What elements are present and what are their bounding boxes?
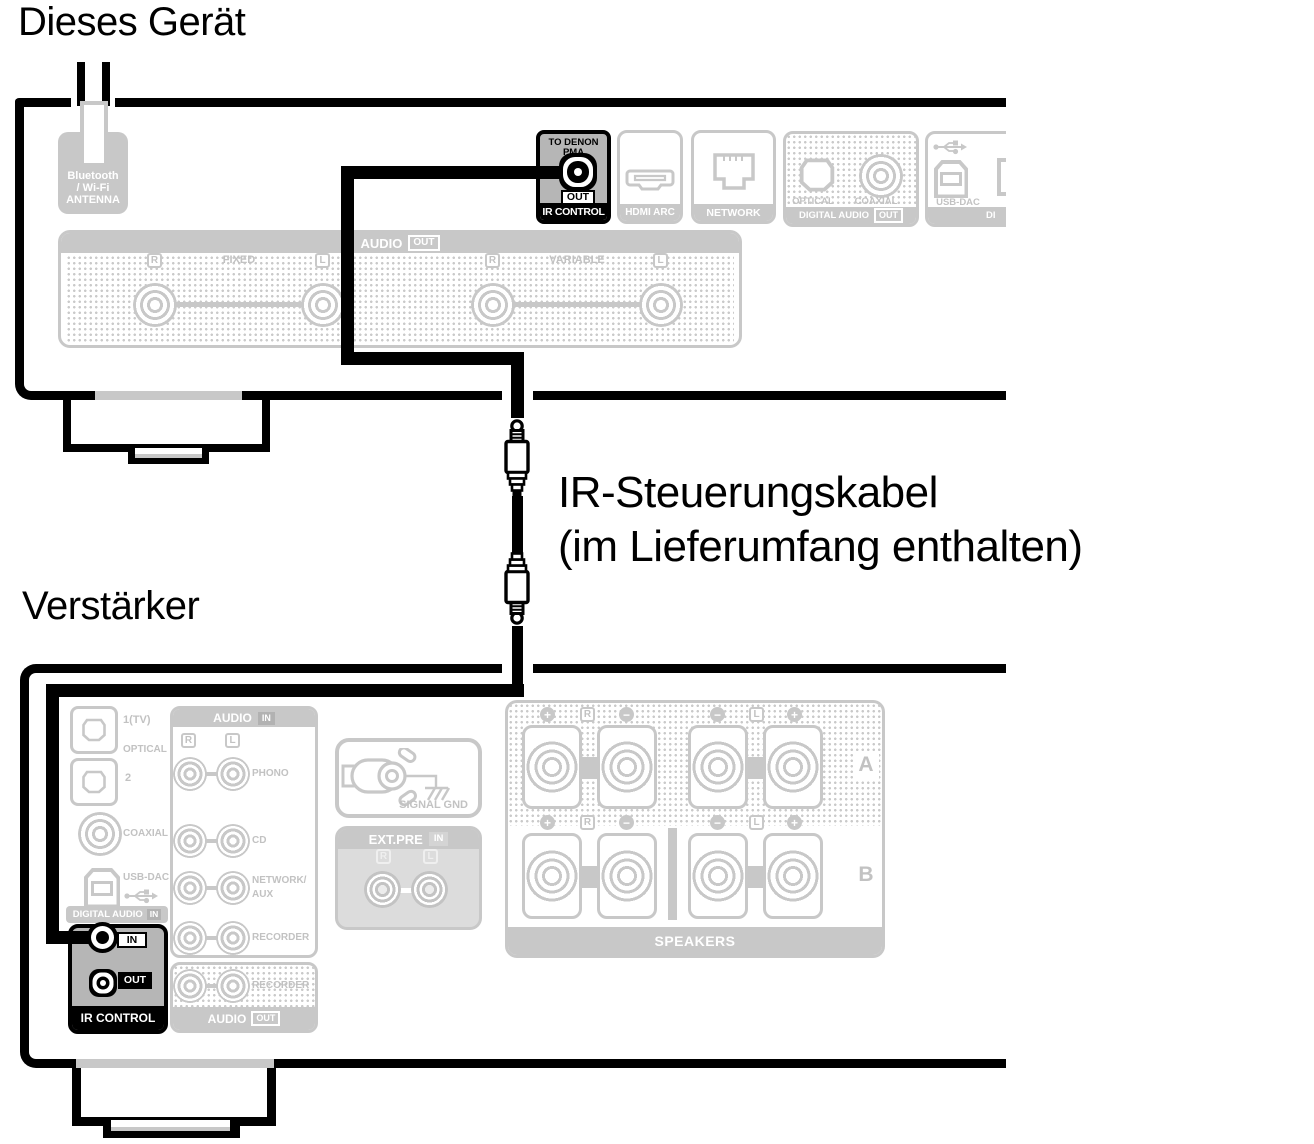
- spk-b-terminal-1: [522, 833, 582, 919]
- phono-label: PHONO: [252, 768, 289, 779]
- audio-out-header-badge: OUT: [408, 235, 439, 251]
- ext-pre-l-jack: [411, 871, 448, 908]
- hdmi-block: HDMI ARC: [617, 130, 683, 224]
- spk-a-minus-right: −: [710, 707, 725, 722]
- ext-pre-header: EXT.PRE: [369, 832, 423, 847]
- optical-out-icon: [798, 156, 836, 194]
- audio-out-block-amp: RECORDER AUDIO OUT: [170, 962, 318, 1033]
- digital-audio-in-badge: IN: [147, 909, 162, 920]
- cd-l-jack: [216, 824, 250, 858]
- amplifier-foot-step-shade: [111, 1127, 230, 1131]
- spk-a-terminal-1-rings: [526, 741, 578, 793]
- spk-b-plus-right: +: [787, 815, 802, 830]
- optical2-label: 2: [125, 772, 131, 784]
- ir-amp-in-badge: IN: [117, 932, 147, 948]
- ext-pre-r-badge: R: [376, 849, 391, 864]
- top-device-foot: [63, 400, 270, 452]
- ir-top-out-jack: [574, 168, 582, 176]
- optical-out-label: OPTICAL: [787, 196, 839, 207]
- spk-a-connector-right: [748, 757, 763, 779]
- top-device-foot-step-shade: [135, 454, 202, 458]
- cable-label: IR-Steuerungskabel (im Lieferumfang enth…: [558, 466, 1083, 574]
- fixed-l-badge: L: [315, 253, 330, 268]
- spk-b-terminal-2-rings: [601, 850, 653, 902]
- spk-b-separator: [668, 828, 677, 920]
- phono-l-jack: [216, 757, 250, 791]
- signal-gnd-icon: [341, 748, 471, 806]
- fixed-pair-connector: [155, 302, 323, 307]
- speakers-block: + R − − L + A + R − − L + B SPEAKERS: [505, 700, 885, 958]
- usb-icon: [932, 139, 968, 155]
- amplifier-foot-step-inner: [111, 1120, 230, 1127]
- hdmi-label: HDMI ARC: [625, 207, 675, 218]
- audio-in-r-badge: R: [181, 733, 196, 748]
- audio-in-header-badge: IN: [258, 712, 275, 725]
- antenna-label-3: ANTENNA: [58, 194, 128, 206]
- spk-b-terminal-3: [688, 833, 748, 919]
- spk-b-terminal-2: [597, 833, 657, 919]
- recorder-in-r-jack: [173, 921, 207, 955]
- ir-amp-in-jack: [96, 931, 109, 944]
- cable-segment-1: [341, 166, 578, 179]
- spk-b-label-box: B: [853, 861, 879, 889]
- optical-group-label: OPTICAL: [123, 744, 167, 755]
- crop-overlay-bottom: [1006, 648, 1314, 1144]
- audio-out-panel: AUDIO OUT R FIXED L R VARIABLE L: [58, 230, 742, 348]
- network-icon: [711, 151, 757, 195]
- spk-a-terminal-4-rings: [767, 741, 819, 793]
- spk-b-minus-right: −: [710, 815, 725, 830]
- spk-b-r-badge: R: [580, 815, 595, 830]
- cable-segment-6: [512, 626, 523, 688]
- network-aux-label-2: AUX: [252, 889, 273, 900]
- digital-audio-out-badge: OUT: [874, 208, 903, 223]
- ir-amp-out-jack: [100, 980, 106, 986]
- spk-b-terminal-3-rings: [692, 850, 744, 902]
- audio-in-header: AUDIO: [213, 711, 252, 725]
- variable-l-badge: L: [653, 253, 668, 268]
- spk-a-plus-right: +: [787, 707, 802, 722]
- amplifier-title: Verstärker: [22, 584, 199, 629]
- spk-b-connector-right: [748, 866, 763, 888]
- ir-amp-block-label: IR CONTROL: [81, 1011, 156, 1025]
- optical2-icon: [81, 768, 107, 796]
- recorder-out-r-jack: [173, 969, 207, 1003]
- cable-label-line-2: (im Lieferumfang enthalten): [558, 520, 1083, 574]
- coaxial-out-label: COAXIAL: [846, 196, 906, 207]
- audio-out-header: AUDIO: [361, 236, 403, 251]
- spk-b-plus-left: +: [540, 815, 555, 830]
- variable-l-jack: [639, 283, 683, 327]
- audio-out-amp-badge: OUT: [251, 1011, 280, 1026]
- variable-r-badge: R: [485, 253, 500, 268]
- antenna-label-2: / Wi-Fi: [58, 182, 128, 194]
- spk-a-terminal-2-rings: [601, 741, 653, 793]
- ext-pre-block: EXT.PRE IN R L: [335, 826, 482, 930]
- spk-a-terminal-4: [763, 725, 823, 809]
- ext-pre-l-badge: L: [423, 849, 438, 864]
- variable-label: VARIABLE: [542, 254, 612, 266]
- cable-plug-up: [501, 419, 533, 499]
- usb-b-in-pin: [91, 881, 113, 896]
- digital-audio-out-block: OPTICAL COAXIAL DIGITAL AUDIO OUT: [783, 131, 919, 227]
- optical1-connector: [70, 706, 118, 754]
- audio-in-block: AUDIO IN R L PHONO CD NETWORK/ AUX RECOR…: [170, 706, 318, 958]
- optical1-label: 1(TV): [123, 714, 151, 726]
- variable-pair-connector: [493, 302, 661, 307]
- network-aux-r-jack: [173, 871, 207, 905]
- coaxial-out-jack: [859, 154, 903, 198]
- antenna-mast-left: [77, 62, 85, 106]
- spk-b-terminal-4-rings: [767, 850, 819, 902]
- spk-a-terminal-3-rings: [692, 741, 744, 793]
- antenna-socket: [80, 101, 108, 167]
- cable-label-line-1: IR-Steuerungskabel: [558, 466, 1083, 520]
- optical2-connector: [70, 758, 118, 806]
- amplifier-foot: [72, 1066, 276, 1126]
- cd-r-jack: [173, 824, 207, 858]
- fixed-l-jack: [301, 283, 345, 327]
- amplifier-foot-top-shade: [76, 1059, 274, 1068]
- usb-dac-in-label: USB-DAC: [123, 872, 169, 883]
- spk-a-label: A: [858, 753, 873, 777]
- top-device-title: Dieses Gerät: [18, 0, 245, 45]
- spk-a-connector-left: [582, 757, 597, 779]
- spk-a-terminal-2: [597, 725, 657, 809]
- spk-a-minus-left: −: [619, 707, 634, 722]
- usb-b-pin: [940, 172, 962, 186]
- ext-pre-r-jack: [364, 871, 401, 908]
- cable-segment-8: [46, 684, 59, 944]
- fixed-label: FIXED: [209, 254, 269, 266]
- ir-connection-diagram: Dieses Gerät Bluetooth / Wi-Fi ANTENNA T…: [0, 0, 1314, 1144]
- hdmi-icon: [623, 169, 677, 195]
- top-device-foot-top-shade: [95, 391, 242, 400]
- cable-plug-down: [501, 545, 533, 625]
- spk-a-label-box: A: [853, 751, 879, 779]
- signal-gnd-label: SIGNAL GND: [399, 799, 468, 811]
- spk-b-label: B: [858, 863, 873, 887]
- signal-gnd-block: SIGNAL GND: [335, 738, 482, 818]
- network-aux-label-1: NETWORK/: [252, 875, 306, 886]
- spk-b-minus-left: −: [619, 815, 634, 830]
- cable-segment-2: [341, 166, 354, 365]
- cable-segment-7: [46, 684, 524, 697]
- digital-audio-in-label: DIGITAL AUDIO: [73, 909, 143, 920]
- variable-r-jack: [471, 283, 515, 327]
- speakers-label: SPEAKERS: [654, 933, 735, 949]
- network-block: NETWORK: [691, 130, 776, 224]
- usb-in-icon: [123, 888, 159, 904]
- recorder-in-l-jack: [216, 921, 250, 955]
- network-label: NETWORK: [706, 207, 760, 219]
- cable-segment-3: [341, 352, 524, 365]
- spk-a-plus-left: +: [540, 707, 555, 722]
- audio-in-l-badge: L: [225, 733, 240, 748]
- antenna-mast-inner: [85, 62, 102, 104]
- spk-a-terminal-3: [688, 725, 748, 809]
- ir-amp-out-badge: OUT: [118, 972, 152, 989]
- digital-audio-in-footer: DIGITAL AUDIO IN: [66, 906, 168, 923]
- antenna-mast-right: [102, 62, 110, 106]
- digital-audio-out-label: DIGITAL AUDIO: [799, 210, 869, 221]
- coaxial-in-jack: [78, 812, 122, 856]
- cable-segment-4: [511, 352, 524, 418]
- optical1-icon: [81, 716, 107, 744]
- ir-top-label-2: PMA: [540, 147, 607, 158]
- fixed-r-jack: [133, 283, 177, 327]
- network-aux-l-jack: [216, 871, 250, 905]
- phono-r-jack: [173, 757, 207, 791]
- audio-out-amp-label: AUDIO: [208, 1012, 247, 1026]
- spk-a-l-badge: L: [749, 707, 764, 722]
- usb-dac-footer: DI: [928, 210, 996, 221]
- spk-a-terminal-1: [522, 725, 582, 809]
- recorder-out-l-jack: [216, 969, 250, 1003]
- crop-overlay-top: [1006, 55, 1314, 460]
- ext-pre-in-badge: IN: [429, 832, 449, 846]
- antenna-label-1: Bluetooth: [58, 170, 128, 182]
- ir-top-block-label: IR CONTROL: [540, 203, 607, 220]
- coaxial-in-label: COAXIAL: [123, 828, 168, 839]
- cd-label: CD: [252, 835, 266, 846]
- recorder-out-label: RECORDER: [252, 980, 309, 991]
- spk-b-connector-left: [582, 866, 597, 888]
- spk-a-r-badge: R: [580, 707, 595, 722]
- spk-b-terminal-1-rings: [526, 850, 578, 902]
- recorder-in-label: RECORDER: [252, 932, 309, 943]
- fixed-r-badge: R: [147, 253, 162, 268]
- spk-b-terminal-4: [763, 833, 823, 919]
- spk-b-l-badge: L: [749, 815, 764, 830]
